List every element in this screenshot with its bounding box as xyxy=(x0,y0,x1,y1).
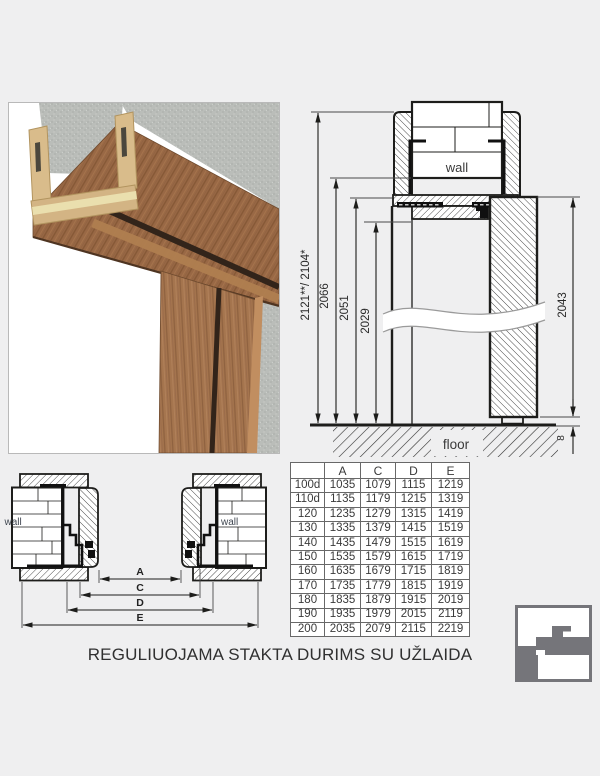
size-cell: 190 xyxy=(291,608,325,622)
dim-cell: 1879 xyxy=(361,594,396,608)
seal xyxy=(88,550,95,558)
dim-cell: 1279 xyxy=(361,507,396,521)
dim-cell: 1979 xyxy=(361,608,396,622)
dim-cell: 2019 xyxy=(432,594,470,608)
dim-cell: 1315 xyxy=(396,507,432,521)
wall-label: wall xyxy=(220,517,238,528)
dim-cell: 1415 xyxy=(396,522,432,536)
seal xyxy=(187,541,195,548)
dim-cell: 1735 xyxy=(325,579,361,593)
size-table-head: ACDE xyxy=(291,463,470,479)
dim-cell: 2015 xyxy=(396,608,432,622)
table-row: 1801835187919152019 xyxy=(291,594,470,608)
size-cell: 130 xyxy=(291,522,325,536)
table-row: 1601635167917151819 xyxy=(291,565,470,579)
dim-cell: 1679 xyxy=(361,565,396,579)
dim-cell: 1135 xyxy=(325,493,361,507)
datasheet-page: wall xyxy=(0,0,600,776)
dim-cell: 1935 xyxy=(325,608,361,622)
table-row: 2002035207921152219 xyxy=(291,622,470,636)
dim-cell: 1115 xyxy=(396,479,432,493)
dim-label-a: A xyxy=(136,566,144,578)
wall-label: wall xyxy=(445,160,469,175)
table-header-cell: D xyxy=(396,463,432,479)
table-row: 1901935197920152119 xyxy=(291,608,470,622)
jamb-assembly-right: wall xyxy=(182,474,266,581)
size-cell: 160 xyxy=(291,565,325,579)
wall-label: wall xyxy=(4,517,22,528)
dim-cell: 1619 xyxy=(432,536,470,550)
dim-cell: 1335 xyxy=(325,522,361,536)
dim-label-d: D xyxy=(136,597,144,609)
size-cell: 120 xyxy=(291,507,325,521)
size-cell: 180 xyxy=(291,594,325,608)
dim-cell: 1435 xyxy=(325,536,361,550)
dim-cell: 1219 xyxy=(432,479,470,493)
table-header-row: ACDE xyxy=(291,463,470,479)
dim-cell: 1179 xyxy=(361,493,396,507)
size-cell: 170 xyxy=(291,579,325,593)
size-table-body: 100d1035107911151219110d1135117912151319… xyxy=(291,479,470,637)
dim-cell: 1379 xyxy=(361,522,396,536)
dim-cell: 1519 xyxy=(432,522,470,536)
dim-cell: 1919 xyxy=(432,579,470,593)
dim-cell: 1915 xyxy=(396,594,432,608)
seal xyxy=(85,541,93,548)
dim-label-2066: 2066 xyxy=(319,283,331,309)
table-row: 1701735177918151919 xyxy=(291,579,470,593)
table-row: 1301335137914151519 xyxy=(291,522,470,536)
dim-cell: 1419 xyxy=(432,507,470,521)
dim-cell: 2119 xyxy=(432,608,470,622)
dim-cell: 1715 xyxy=(396,565,432,579)
dim-label-2029: 2029 xyxy=(360,308,372,334)
jamb-assembly-left: wall xyxy=(4,474,99,581)
dim-cell: 2035 xyxy=(325,622,361,636)
dim-cell: 1635 xyxy=(325,565,361,579)
dim-cell: 1779 xyxy=(361,579,396,593)
table-row: 100d1035107911151219 xyxy=(291,479,470,493)
dim-cell: 1819 xyxy=(432,565,470,579)
dim-cell: 1835 xyxy=(325,594,361,608)
dim-cell: 1235 xyxy=(325,507,361,521)
table-header-cell: C xyxy=(361,463,396,479)
dim-cell: 1535 xyxy=(325,550,361,564)
table-header-cell: A xyxy=(325,463,361,479)
vertical-section-drawing: wall xyxy=(300,102,580,457)
dim-label-e: E xyxy=(136,612,143,624)
seal xyxy=(185,550,192,558)
dim-label-2051: 2051 xyxy=(339,295,351,321)
logo xyxy=(515,605,592,682)
dim-cell: 1719 xyxy=(432,550,470,564)
dim-cell: 1079 xyxy=(361,479,396,493)
table-header-cell: E xyxy=(432,463,470,479)
dim-cell: 1035 xyxy=(325,479,361,493)
dim-cell: 1515 xyxy=(396,536,432,550)
size-cell: 100d xyxy=(291,479,325,493)
size-table: ACDE 100d1035107911151219110d11351179121… xyxy=(290,462,470,637)
dim-cell: 1579 xyxy=(361,550,396,564)
table-row: 1201235127913151419 xyxy=(291,507,470,521)
dim-label-c: C xyxy=(136,582,144,594)
page-title: REGULIUOJAMA STAKTA DURIMS SU UŽLAIDA xyxy=(40,645,520,665)
dim-cell: 1319 xyxy=(432,493,470,507)
dim-cell: 1479 xyxy=(361,536,396,550)
dim-cell: 2079 xyxy=(361,622,396,636)
size-cell: 140 xyxy=(291,536,325,550)
dim-label-floor-gap: 8 xyxy=(556,435,567,441)
plan-section-drawing: wall xyxy=(4,474,267,628)
table-row: 1501535157916151719 xyxy=(291,550,470,564)
size-cell: 150 xyxy=(291,550,325,564)
floor-label: floor xyxy=(443,437,470,452)
dim-label-total-height: 2121**/ 2104* xyxy=(300,249,312,321)
dim-cell: 1615 xyxy=(396,550,432,564)
dim-label-leaf-height: 2043 xyxy=(557,292,569,318)
dim-cell: 1815 xyxy=(396,579,432,593)
size-cell: 110d xyxy=(291,493,325,507)
table-row: 110d1135117912151319 xyxy=(291,493,470,507)
dim-cell: 2219 xyxy=(432,622,470,636)
dim-cell: 1215 xyxy=(396,493,432,507)
size-cell: 200 xyxy=(291,622,325,636)
table-header-cell xyxy=(291,463,325,479)
table-row: 1401435147915151619 xyxy=(291,536,470,550)
dim-cell: 2115 xyxy=(396,622,432,636)
door-frame-profile-icon xyxy=(518,608,589,679)
